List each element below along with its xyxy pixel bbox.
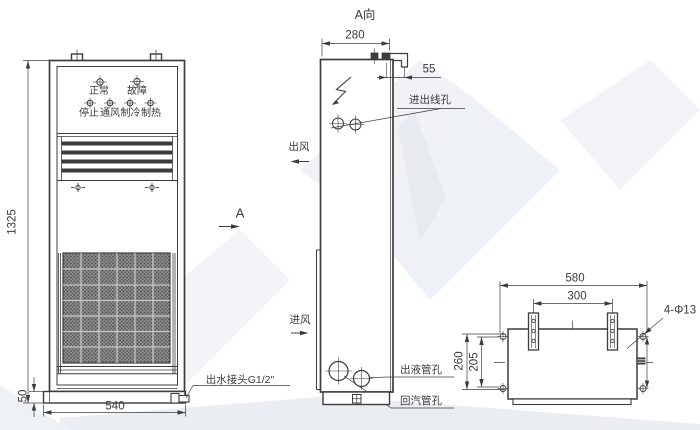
indicator-label-normal: 正常	[89, 87, 109, 97]
dim-1325	[23, 61, 50, 404]
linework-layer	[0, 0, 700, 430]
air-out-arrow	[291, 159, 310, 163]
water-outlet-label: 出水接头G1/2"	[206, 375, 275, 386]
vapor-pipe-label: 回汽管孔	[400, 396, 442, 407]
indicator-label-cool: 制冷	[121, 109, 141, 119]
front-view	[23, 50, 290, 418]
dim-label-280: 280	[345, 30, 364, 42]
mounting-holes-label: 4-Φ13	[664, 305, 696, 317]
side-outline	[321, 60, 394, 393]
dim-label-55: 55	[423, 64, 436, 76]
dim-label-260: 260	[454, 351, 466, 370]
wire-holes-label: 进出线孔	[409, 95, 451, 106]
air-in-arrow	[291, 331, 309, 335]
dim-label-300: 300	[567, 291, 586, 303]
top-view	[462, 281, 663, 405]
air-out-label: 出风	[289, 142, 310, 153]
dim-label-50: 50	[18, 390, 30, 403]
indicator-label-heat: 制热	[141, 109, 161, 119]
indicator-label-stop: 停止	[79, 109, 99, 119]
liquid-pipe-label: 出液管孔	[400, 365, 442, 376]
technical-drawing-canvas: 正常 故障 停止 通风 制冷 制热 1325 50 540 出水接头G1/2" …	[0, 0, 700, 430]
dim-label-580: 580	[565, 273, 584, 285]
indicator-label-vent: 通风	[100, 109, 120, 119]
dim-label-1325: 1325	[7, 209, 19, 235]
section-arrow-A	[219, 224, 240, 229]
dim-50	[29, 377, 44, 417]
dim-label-540: 540	[105, 401, 124, 413]
air-in-label: 进风	[290, 315, 311, 326]
section-label-A: A	[236, 207, 245, 220]
indicator-label-fault: 故障	[127, 87, 147, 97]
dim-580	[500, 281, 647, 333]
view-title-A: A向	[355, 9, 376, 22]
mesh-grille	[57, 253, 178, 374]
dim-label-205: 205	[469, 352, 481, 371]
